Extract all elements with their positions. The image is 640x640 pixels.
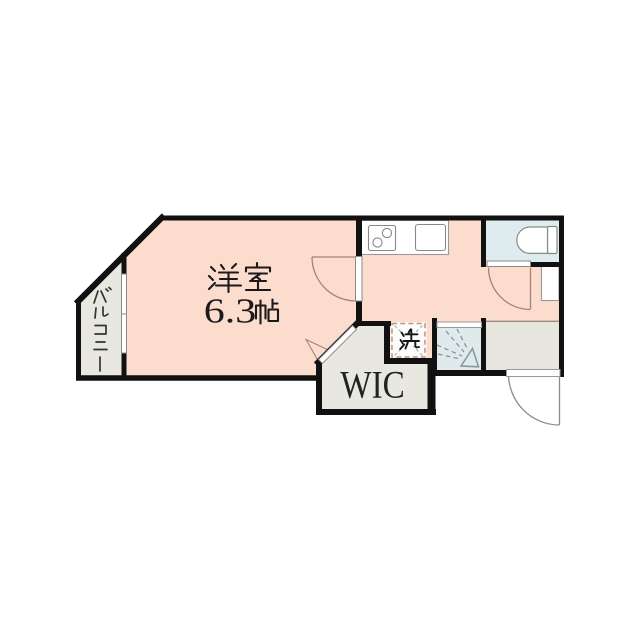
svg-text:6.3: 6.3	[204, 293, 256, 331]
svg-text:WIC: WIC	[340, 363, 404, 406]
